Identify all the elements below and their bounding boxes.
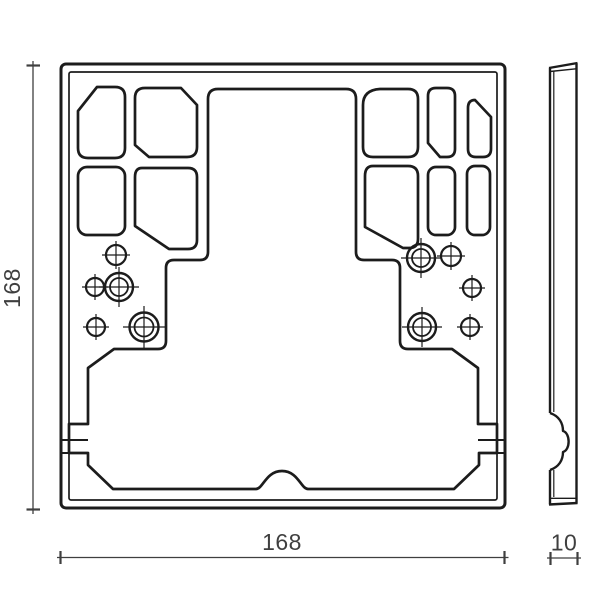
cutout: [365, 166, 418, 248]
mounting-hole: [437, 242, 465, 270]
dimension-height: 168: [0, 61, 40, 514]
drawing-page: 168 168 10: [0, 0, 600, 600]
side-profile-top-lip: [550, 69, 576, 72]
mounting-hole-large: [99, 267, 139, 307]
dimension-width: 168: [57, 529, 509, 564]
cutout: [135, 168, 197, 249]
cutout: [135, 88, 197, 157]
dim-label-width: 168: [262, 529, 302, 555]
side-profile-top-edge: [549, 63, 578, 68]
side-view: [549, 63, 578, 505]
cutout: [428, 167, 455, 235]
dimension-depth: 10: [547, 530, 581, 566]
cutout: [363, 89, 418, 157]
mounting-hole: [83, 314, 109, 340]
dim-label-depth: 10: [551, 530, 578, 556]
mounting-hole-large: [402, 307, 442, 347]
mounting-hole: [457, 314, 483, 340]
side-profile-clip-bump: [550, 413, 569, 470]
front-view: [61, 64, 505, 508]
technical-drawing: 168 168 10: [0, 0, 600, 600]
mounting-hole: [459, 275, 485, 301]
dim-label-height: 168: [0, 268, 25, 308]
cutout: [428, 88, 455, 157]
clip-notch-left: [61, 440, 88, 453]
cutout: [78, 87, 125, 158]
mounting-hole-large: [401, 238, 441, 278]
side-profile-bottom-edge: [549, 503, 578, 505]
cutout: [468, 100, 491, 157]
mounting-hole-large: [123, 306, 165, 348]
cutout: [467, 166, 490, 235]
cutout: [78, 167, 125, 235]
clip-notch-right: [478, 440, 505, 453]
mounting-hole: [102, 241, 130, 269]
